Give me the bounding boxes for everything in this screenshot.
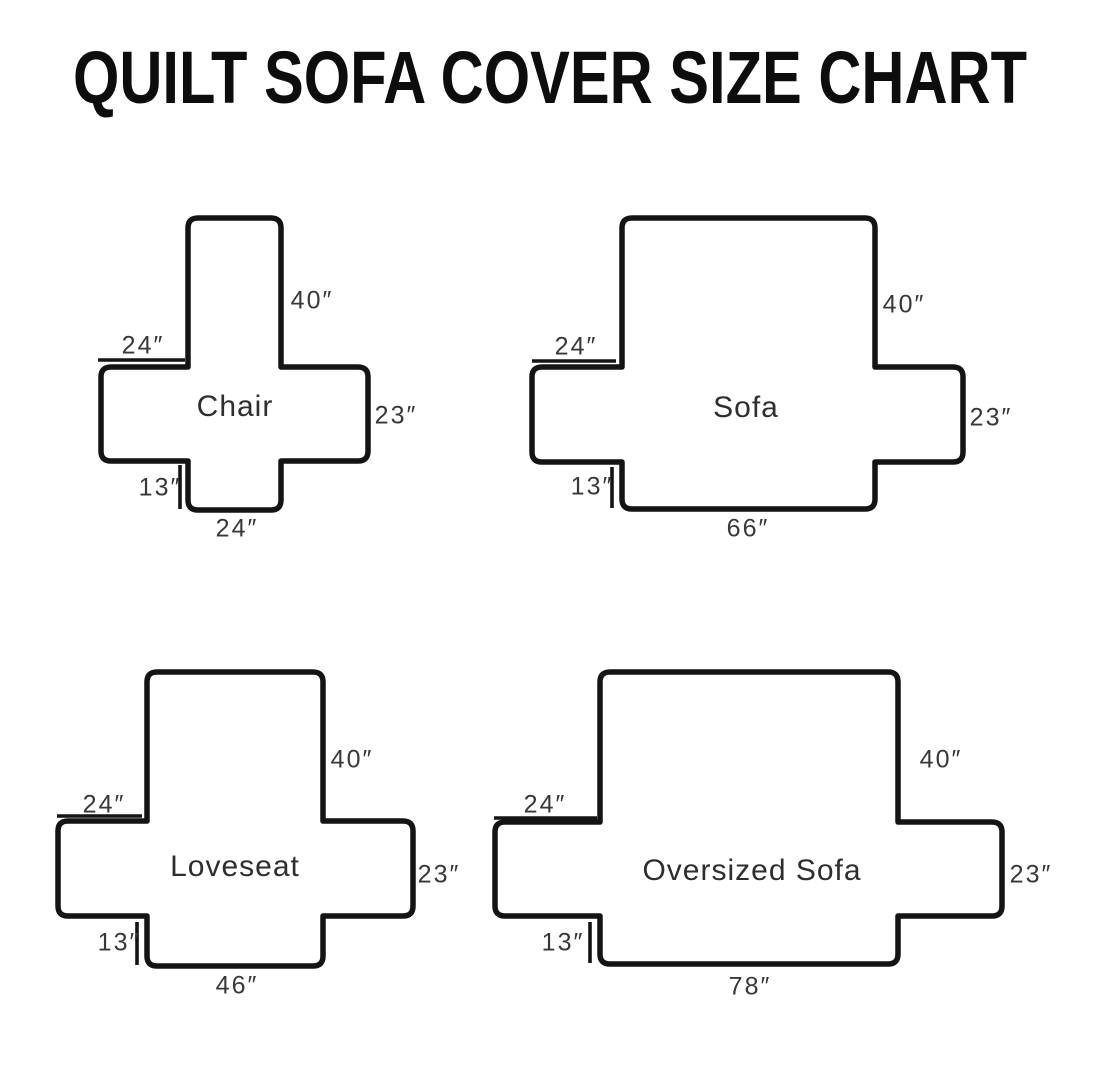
sofa-outline (532, 218, 963, 509)
loveseat-outline (58, 672, 413, 966)
oversized-sofa-name-label: Oversized Sofa (642, 856, 861, 886)
sofa-back-height-label: 40″ (883, 293, 926, 318)
sofa-side-height-label: 23″ (970, 406, 1013, 431)
loveseat-arm-width-label: 24″ (83, 793, 126, 818)
sofa-base-width-label: 66″ (727, 517, 770, 542)
sofa-name-label: Sofa (713, 393, 779, 423)
sofa-front-drop-label: 13″ (571, 475, 614, 500)
loveseat-name-label: Loveseat (170, 852, 300, 882)
loveseat-front-drop-label: 13″ (98, 931, 141, 956)
oversized-sofa-diagram (494, 672, 1002, 964)
loveseat-base-width-label: 46″ (216, 974, 259, 999)
loveseat-diagram (57, 672, 413, 966)
chair-front-drop-label: 13″ (139, 476, 182, 501)
chair-base-width-label: 24″ (216, 517, 259, 542)
oversized-sofa-front-drop-label: 13″ (542, 931, 585, 956)
loveseat-back-height-label: 40″ (331, 748, 374, 773)
oversized-sofa-back-height-label: 40″ (920, 748, 963, 773)
chair-diagram (98, 218, 368, 510)
chair-name-label: Chair (197, 392, 274, 422)
chair-arm-width-label: 24″ (122, 334, 165, 359)
quilt-sofa-cover-size-chart: QUILT SOFA COVER SIZE CHART 40″ 24″ Chai… (0, 0, 1100, 1092)
oversized-sofa-side-height-label: 23″ (1010, 863, 1053, 888)
chair-back-height-label: 40″ (291, 289, 334, 314)
sofa-diagram (532, 218, 963, 509)
oversized-sofa-base-width-label: 78″ (729, 975, 772, 1000)
oversized-sofa-arm-width-label: 24″ (524, 793, 567, 818)
loveseat-side-height-label: 23″ (418, 863, 461, 888)
sofa-arm-width-label: 24″ (555, 335, 598, 360)
chair-side-height-label: 23″ (375, 404, 418, 429)
chair-outline (101, 218, 368, 510)
